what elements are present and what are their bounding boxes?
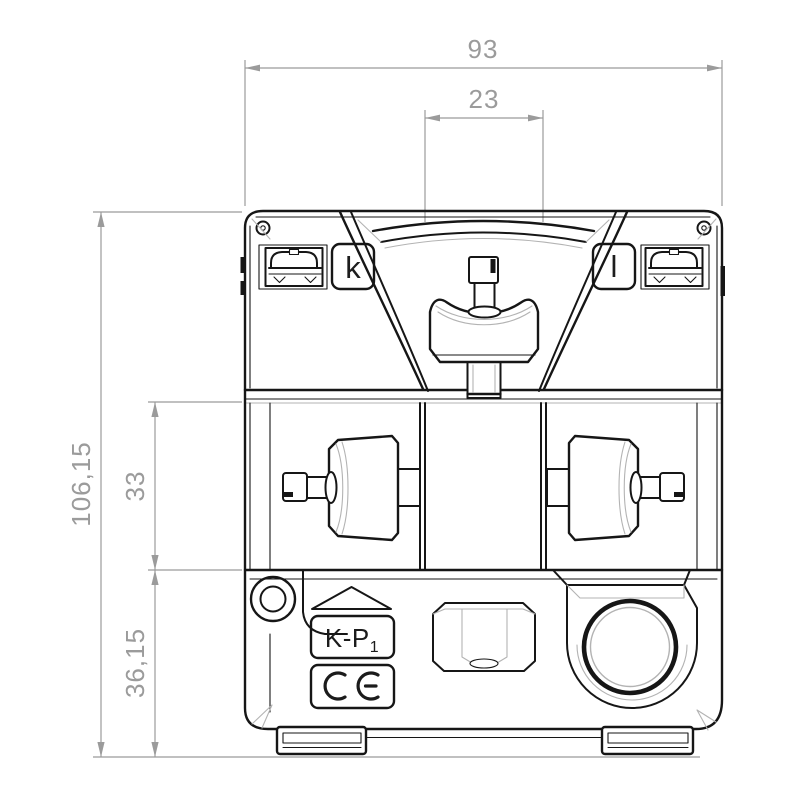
dim-value-total-height: 106,15 (66, 441, 96, 527)
clamp-body (329, 436, 398, 540)
arrowhead (151, 570, 158, 585)
center-saddle-block (433, 603, 535, 671)
orientation-arrow-icon (312, 587, 391, 609)
kp1-marking: K-P1 (311, 616, 394, 658)
shaft-collar (631, 472, 642, 503)
side-latch-left-2 (241, 281, 246, 295)
current-transformer-drawing: 93 23 106,15 33 36,15 (0, 0, 800, 800)
saddle-hole (470, 659, 498, 668)
housing-bottom-section: K-P1 (251, 570, 716, 754)
corner-gusset-right (697, 710, 716, 730)
arch-dome-outer (373, 221, 594, 231)
clamp-body (569, 436, 638, 540)
left-clamp-assembly (283, 436, 420, 540)
mounting-hole-outer (251, 577, 295, 621)
primary-hole-ring (584, 601, 676, 693)
arch-side-left-inner (351, 212, 428, 391)
foot-outline (277, 727, 366, 754)
primary-hole-bore (591, 608, 670, 687)
screw-left-icon (257, 222, 270, 235)
dim-value-window-width: 23 (469, 84, 500, 114)
arch-dome-facet (385, 239, 582, 249)
terminal-v-marks (654, 277, 696, 283)
screw-slot (674, 492, 683, 497)
terminal-v-marks (274, 277, 316, 283)
din-foot-right (602, 727, 693, 754)
dim-value-total-width: 93 (468, 34, 499, 64)
primary-hole-assembly (553, 570, 697, 708)
shroud-inner-edge (567, 585, 684, 598)
dimension-total-width: 93 (245, 34, 722, 206)
dim-value-bottom-height: 36,15 (120, 628, 150, 698)
ce-box (311, 665, 394, 708)
terminal-notch (290, 250, 299, 255)
shaft-collar (469, 307, 501, 318)
kp1-text: K-P1 (325, 623, 379, 656)
ce-letter-e (358, 673, 378, 699)
window-column-right-edge (541, 403, 546, 570)
terminal-notch (670, 250, 679, 255)
shaft-collar (326, 472, 337, 503)
mounting-hole-inner (261, 587, 286, 612)
arrowhead (97, 742, 104, 757)
arch-side-right-inner (539, 212, 616, 391)
ce-letter-c (325, 673, 345, 699)
dimension-window-width: 23 (425, 84, 543, 222)
shroud-top (553, 570, 690, 585)
corner-gusset-left (252, 705, 272, 728)
arch-side-left-outer (340, 212, 423, 389)
terminal-block-l (641, 245, 709, 289)
label-text-l: l (611, 249, 618, 284)
arrowhead (151, 402, 158, 417)
ce-marking (311, 665, 394, 708)
arrowhead (528, 115, 543, 122)
arch-side-right-outer (544, 212, 627, 389)
screw-right-center (702, 226, 706, 230)
top-clamp-assembly (430, 257, 538, 398)
arrowhead (707, 65, 722, 72)
arrowhead (425, 115, 440, 122)
arrowhead (151, 555, 158, 570)
side-latch-right (721, 266, 726, 296)
terminal-block-k (259, 245, 327, 289)
arrowhead (245, 65, 260, 72)
dimension-bottom-height: 36,15 (120, 570, 159, 757)
din-foot-left (277, 727, 366, 754)
arrowhead (151, 742, 158, 757)
arrowhead (97, 212, 104, 227)
screw-slot (284, 492, 293, 497)
dim-value-middle-height: 33 (120, 471, 150, 502)
arch-dome-inner (381, 233, 586, 243)
right-clamp-assembly (547, 436, 684, 540)
foot-outline (602, 727, 693, 754)
dimension-middle-height: 33 (120, 402, 242, 757)
housing-middle-section (245, 390, 722, 729)
ce-mark-icon (325, 673, 378, 699)
technical-drawing-page: 93 23 106,15 33 36,15 (0, 0, 800, 800)
side-latch-left (241, 257, 246, 273)
screw-slot (491, 259, 496, 273)
